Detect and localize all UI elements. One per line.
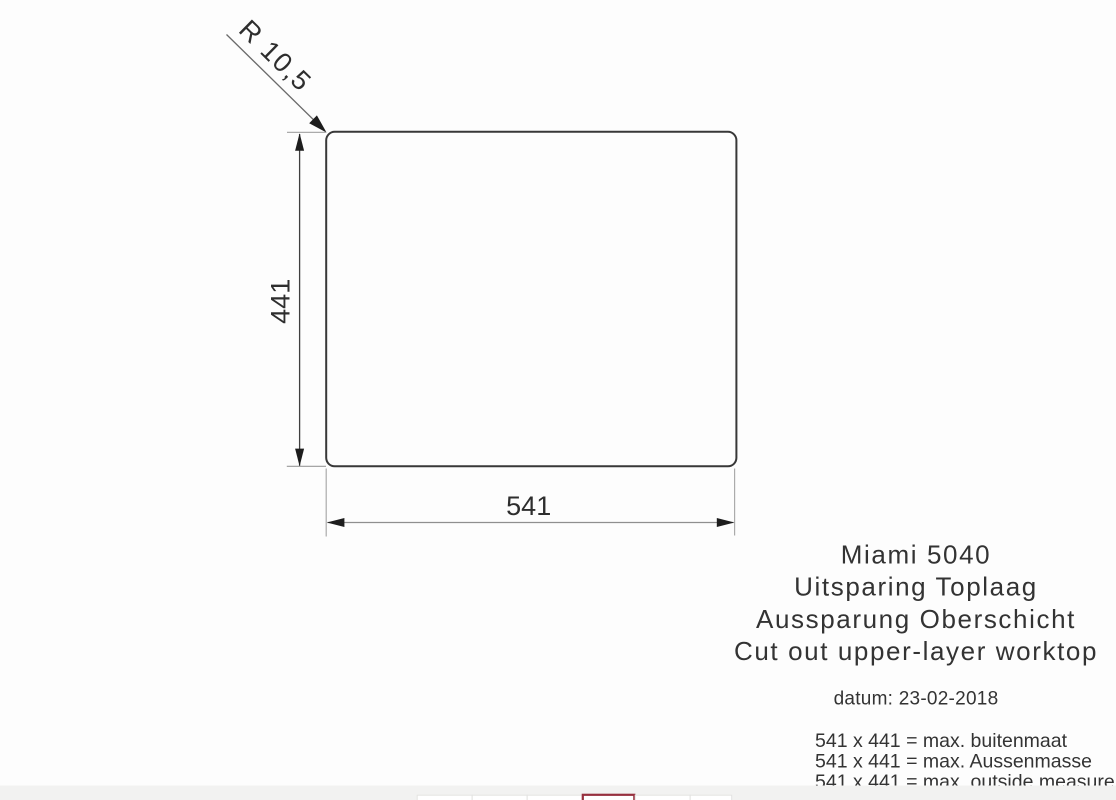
svg-text:541: 541 [506, 491, 551, 521]
svg-text:datum: 23-02-2018: datum: 23-02-2018 [834, 689, 999, 710]
svg-text:Aussparung Oberschicht: Aussparung Oberschicht [756, 604, 1076, 634]
svg-text:Uitsparing Toplaag: Uitsparing Toplaag [794, 572, 1038, 602]
svg-text:541 x 441 = max. buitenmaat: 541 x 441 = max. buitenmaat [815, 730, 1068, 752]
svg-text:441: 441 [265, 279, 295, 324]
svg-text:Miami 5040: Miami 5040 [841, 539, 991, 569]
svg-text:541 x 441 = max. Aussenmasse: 541 x 441 = max. Aussenmasse [815, 750, 1092, 772]
svg-text:Cut out upper-layer worktop: Cut out upper-layer worktop [734, 636, 1098, 666]
